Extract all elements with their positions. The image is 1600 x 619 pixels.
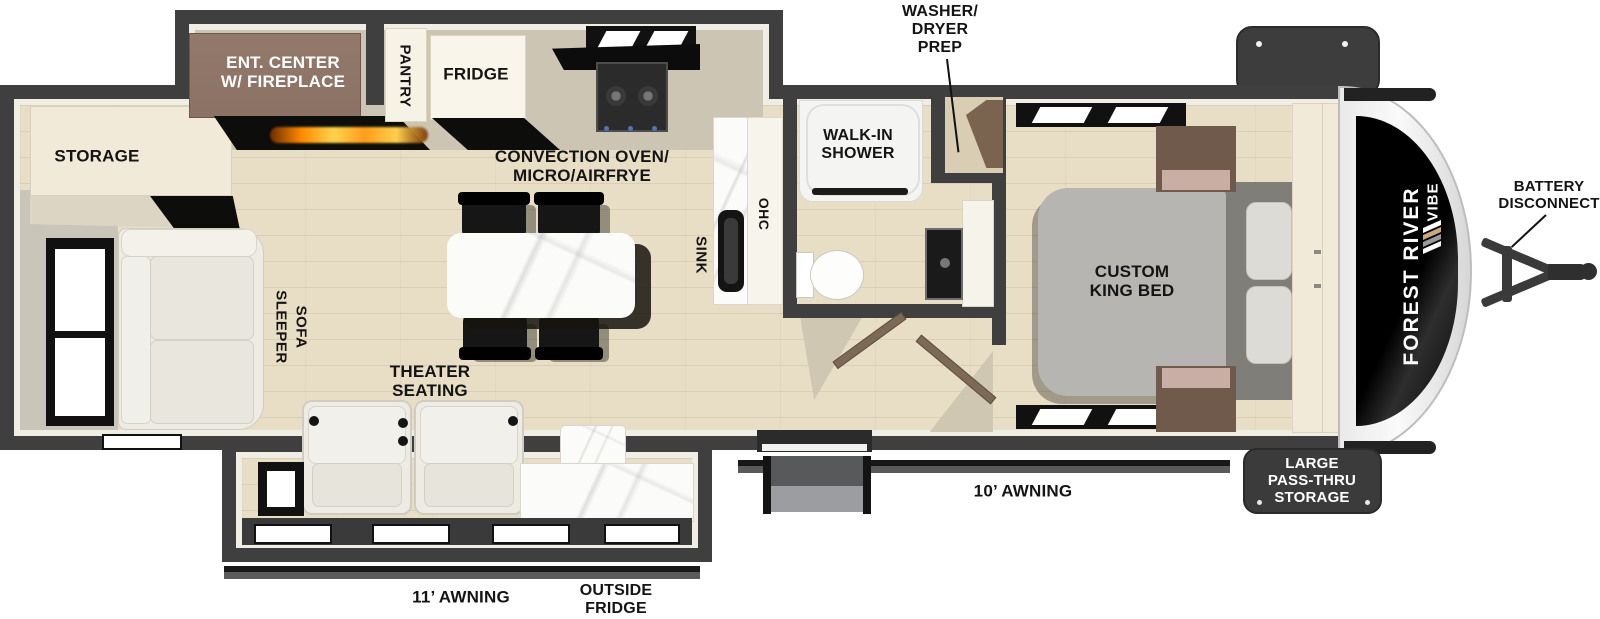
front-cap-roof-seal <box>1344 88 1436 101</box>
nightstand-drawer <box>1162 170 1230 190</box>
slide-divider-wall <box>366 22 384 105</box>
slide-window <box>604 524 680 544</box>
theater-seat <box>302 400 412 515</box>
dining-chair <box>463 316 527 354</box>
island-table <box>447 233 635 318</box>
theater-seating-label: THEATER SEATING <box>390 362 470 400</box>
entry-step-rail <box>863 456 871 514</box>
hitch-coupler-knob <box>1580 263 1597 280</box>
battery-disconnect-label: BATTERY DISCONNECT <box>1498 179 1599 213</box>
closet-handle <box>1314 284 1321 288</box>
badge-rivet <box>1257 500 1262 505</box>
washer-dryer-label: WASHER/ DRYER PREP <box>902 3 978 57</box>
walk-in-shower-label: WALK-IN SHOWER <box>821 127 894 163</box>
entry-threshold <box>762 444 867 451</box>
stove-knob <box>604 126 609 131</box>
slide-window <box>372 524 450 544</box>
closet-handle <box>1314 250 1321 254</box>
brand-vibe: VIBE <box>1425 182 1442 221</box>
pass-thru-storage-label: LARGE PASS-THRU STORAGE <box>1268 456 1356 506</box>
bed-pillow <box>1246 286 1292 364</box>
hitch-crossbar <box>1502 246 1512 302</box>
dining-chair <box>539 316 599 354</box>
dining-chair <box>538 198 600 236</box>
floorplan: STORAGE SLEEPER SOFA ENT. CENTER W/ FIRE… <box>0 0 1600 619</box>
cupholder <box>398 436 408 446</box>
bed-pillow <box>1246 202 1292 280</box>
awning-10-label: 10’ AWNING <box>974 481 1073 500</box>
ent-center-label: ENT. CENTER W/ FIREPLACE <box>221 53 345 91</box>
burner <box>606 86 626 106</box>
convection-label: CONVECTION OVEN/ MICRO/AIRFRYE <box>495 147 669 185</box>
ohc-label: OHC <box>756 198 772 231</box>
fridge-label: FRIDGE <box>443 64 508 83</box>
slide-kitchen-counter <box>520 463 694 522</box>
slide-side-window <box>258 462 304 516</box>
end-table <box>560 425 626 467</box>
awning-rail-11ft <box>224 566 700 579</box>
cupholder <box>508 416 518 426</box>
king-bed-label: CUSTOM KING BED <box>1090 262 1175 300</box>
hitch-frame-bar <box>1480 237 1555 276</box>
vanity-knob <box>940 258 950 268</box>
storage-label: STORAGE <box>54 146 139 165</box>
sofa-cushion <box>150 340 254 424</box>
fireplace-flames <box>270 127 428 143</box>
hitch-frame-bar <box>1480 269 1555 308</box>
roof-box-rivet <box>1256 41 1262 47</box>
bedroom-window-top <box>1016 103 1186 127</box>
outside-fridge-label: OUTSIDE FRIDGE <box>580 582 653 618</box>
kitchen-sink-basin <box>724 218 738 284</box>
burner <box>638 86 658 106</box>
entry-step-lower <box>771 486 863 512</box>
shower-bar <box>812 188 908 195</box>
entry-step-upper <box>771 456 863 486</box>
washer-closet-wall-left <box>931 85 945 183</box>
dining-chair <box>462 198 526 236</box>
slide-window <box>492 524 570 544</box>
brand-forest-river: FOREST RIVER <box>1400 186 1424 365</box>
sofa-armrest <box>121 229 257 257</box>
cupholder <box>398 418 408 428</box>
badge-rivet <box>1365 500 1370 505</box>
awning-11-label: 11’ AWNING <box>412 587 510 606</box>
toilet-bowl <box>810 250 864 300</box>
roof-box-rivet <box>1342 41 1348 47</box>
sofa-cushion <box>150 256 254 340</box>
cupholder <box>309 416 319 426</box>
rear-wall-window <box>46 238 114 426</box>
vanity-counter <box>962 200 994 307</box>
pantry-label: PANTRY <box>397 45 414 108</box>
vibe-chevron-logo <box>1423 224 1441 254</box>
entry-step-rail <box>763 456 771 514</box>
nightstand-drawer <box>1162 368 1230 388</box>
slide-window <box>254 524 332 544</box>
stove-knob <box>652 126 657 131</box>
stove-knob <box>628 126 633 131</box>
theater-seat <box>414 400 524 515</box>
sleeper-sofa-label-1: SLEEPER <box>273 290 290 364</box>
sink-label: SINK <box>693 236 710 274</box>
kitchen-bath-wall <box>783 85 797 318</box>
battery-leader-line <box>1511 214 1547 248</box>
rear-bottom-window <box>102 434 182 450</box>
sleeper-sofa-label-2: SOFA <box>293 306 310 349</box>
closet-divider <box>1322 103 1323 433</box>
sofa-back <box>121 256 151 424</box>
